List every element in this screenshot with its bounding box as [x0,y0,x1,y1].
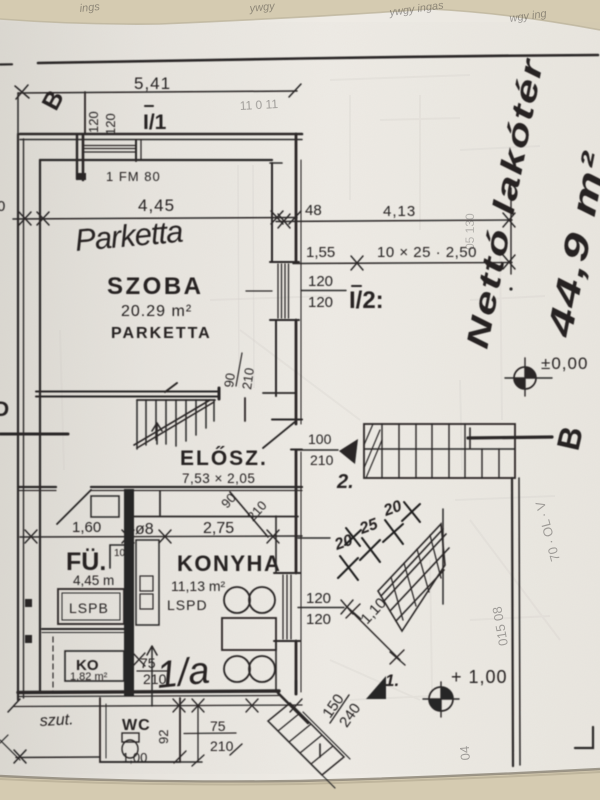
svg-text:WC: WC [122,717,151,734]
svg-text:±0,00: ±0,00 [541,354,588,373]
svg-text:5,41: 5,41 [134,74,171,93]
svg-text:210: 210 [210,738,234,754]
svg-text:120: 120 [308,294,333,311]
svg-text:ings: ings [79,1,101,15]
svg-text:2.: 2. [336,471,354,493]
svg-text:SZOBA: SZOBA [107,273,204,300]
svg-text:120: 120 [103,113,118,135]
svg-text:ø8: ø8 [135,521,154,538]
svg-text:1,82 m²: 1,82 m² [70,671,108,683]
svg-text:ELŐSZ.: ELŐSZ. [180,447,268,470]
svg-text:04: 04 [457,745,473,761]
svg-text:120: 120 [306,611,331,628]
svg-text:I/2:: I/2: [349,287,384,314]
svg-text:LSPD: LSPD [167,597,208,613]
svg-text:PARKETTA: PARKETTA [111,325,212,342]
svg-text:4,13: 4,13 [383,203,416,220]
svg-text:4,45: 4,45 [138,196,175,215]
svg-text:120: 120 [308,273,333,290]
svg-text:szut.: szut. [39,711,74,730]
svg-text:10: 10 [114,548,126,559]
svg-text:48: 48 [305,202,322,219]
svg-text:20.29 m²: 20.29 m² [121,303,192,320]
svg-text:7,53 × 2,05: 7,53 × 2,05 [182,471,255,486]
svg-text:120: 120 [86,111,101,133]
svg-text:D: D [0,398,9,421]
svg-text:120: 120 [306,590,331,607]
svg-text:FÜ.: FÜ. [66,547,106,576]
svg-text:1,55: 1,55 [306,244,335,261]
svg-text:11 0 11: 11 0 11 [239,97,278,113]
svg-text:LSPB: LSPB [69,600,109,616]
svg-text:1,60: 1,60 [72,519,101,536]
svg-text:+ 1,00: + 1,00 [451,667,508,687]
svg-text:210: 210 [143,671,167,687]
svg-text:I/1: I/1 [143,111,167,134]
svg-text:92: 92 [156,730,171,744]
svg-text:2,75: 2,75 [203,520,234,537]
svg-text:10 × 25 · 2,50: 10 × 25 · 2,50 [377,244,477,261]
svg-text:0: 0 [0,198,5,215]
svg-text:75: 75 [210,718,226,734]
svg-text:210: 210 [239,367,257,391]
svg-text:210: 210 [310,452,334,468]
svg-text:1 FM 80: 1 FM 80 [106,169,161,184]
svg-text:100: 100 [308,431,332,447]
svg-text:11,13 m²: 11,13 m² [171,578,226,594]
svg-text:4,45 m: 4,45 m [73,573,114,588]
svg-text:KONYHA: KONYHA [177,551,281,576]
svg-text:1.: 1. [385,671,399,690]
